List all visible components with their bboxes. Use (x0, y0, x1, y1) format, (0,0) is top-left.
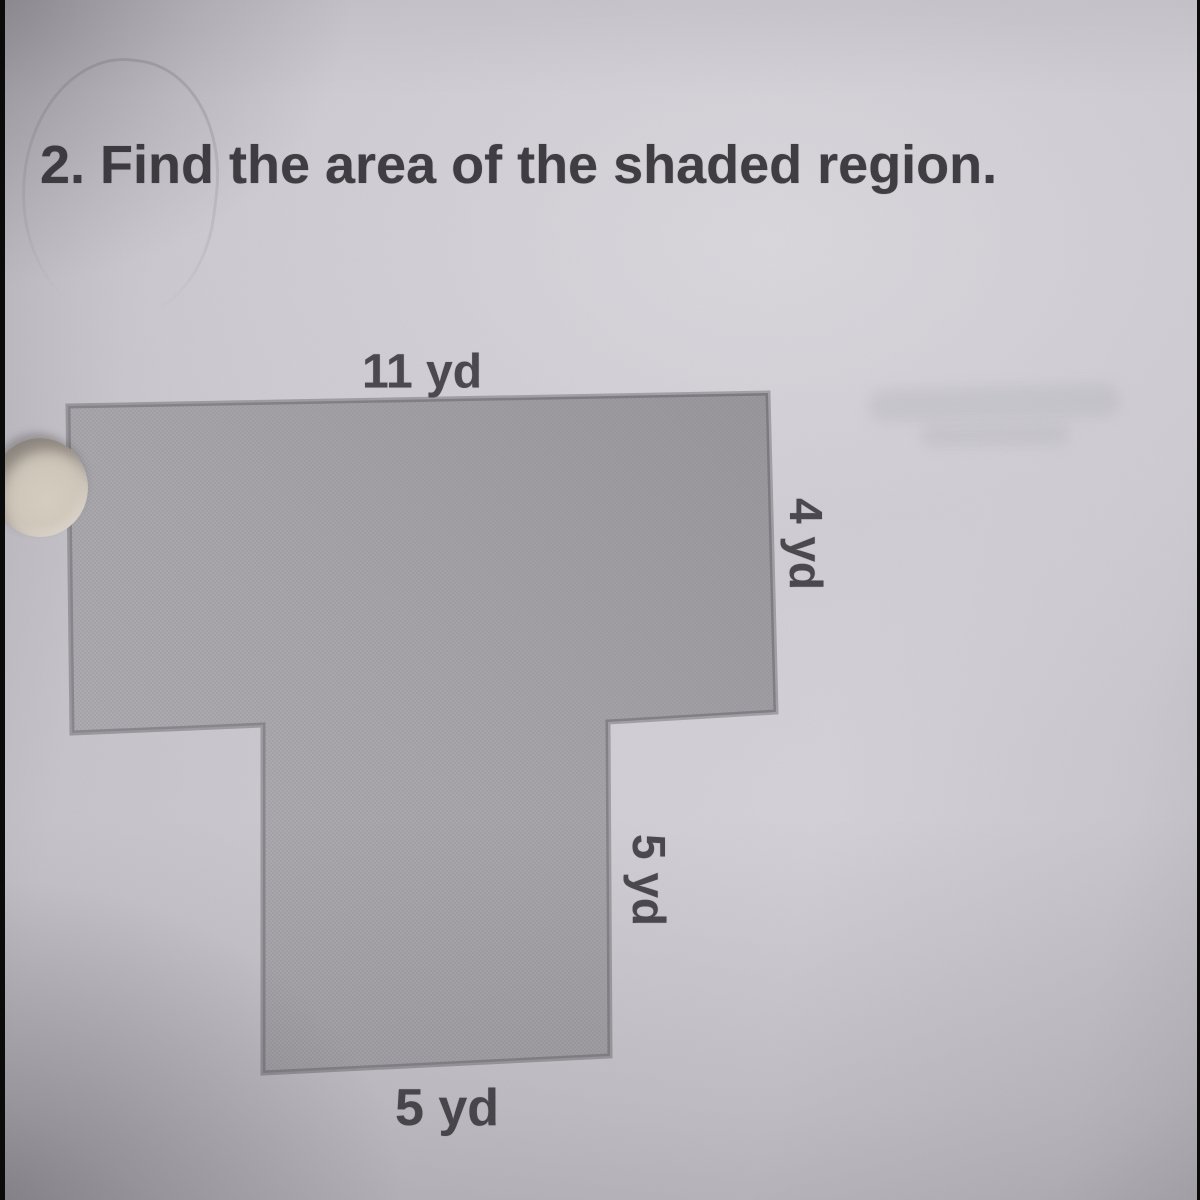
worksheet-photo: 2. Find the area of the shaded region. 1… (0, 0, 1200, 1200)
dimension-label-top: 11 yd (362, 345, 482, 400)
dimension-label-right: 4 yd (779, 498, 833, 590)
shaded-region-halftone (68, 393, 776, 1073)
photo-edge-left (0, 0, 5, 1200)
problem-title: 2. Find the area of the shaded region. (40, 134, 997, 196)
dimension-label-stem-right: 5 yd (622, 834, 676, 926)
dimension-label-bottom: 5 yd (395, 1078, 499, 1138)
